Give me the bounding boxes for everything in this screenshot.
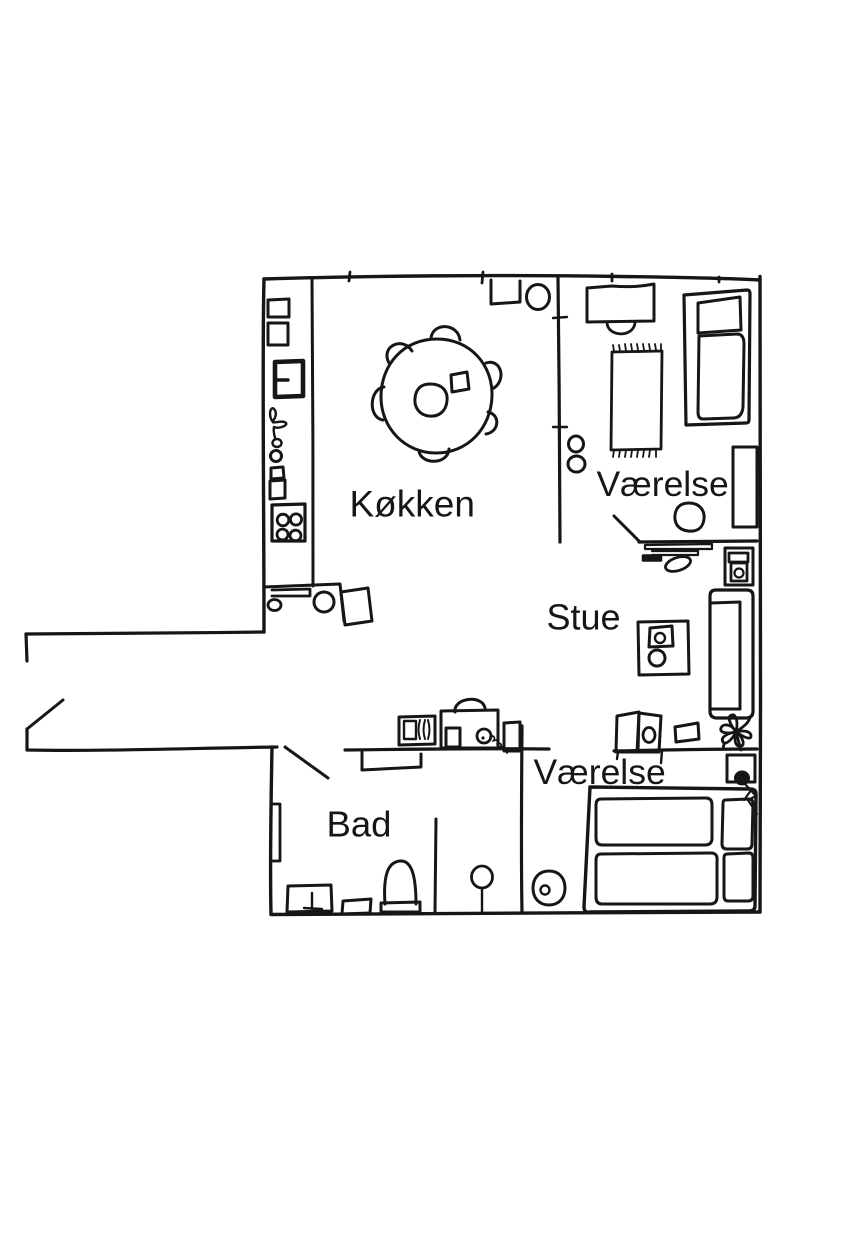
svg-text:Stue: Stue [547, 597, 621, 638]
svg-text:Bad: Bad [327, 804, 392, 845]
svg-text:Værelse: Værelse [597, 464, 729, 504]
svg-text:Køkken: Køkken [350, 484, 475, 525]
